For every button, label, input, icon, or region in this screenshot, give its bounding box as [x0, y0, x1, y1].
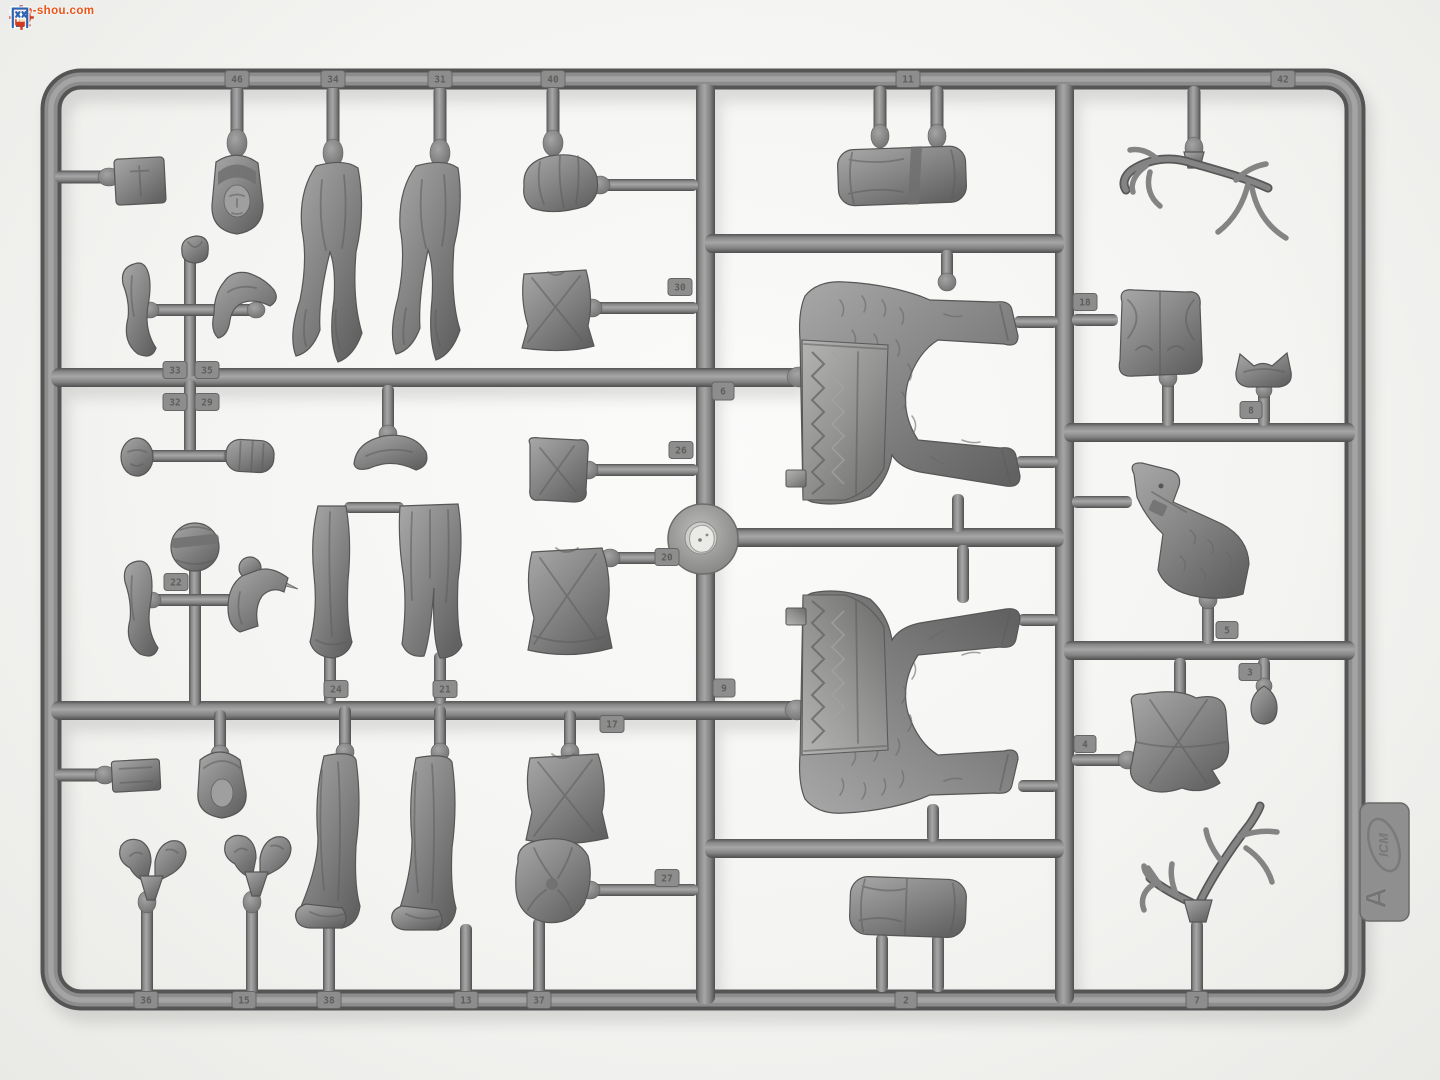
- cn-wang-glyph: [9, 5, 31, 29]
- svg-text:36: 36: [140, 996, 152, 1007]
- part-number-tab: 31: [428, 71, 452, 88]
- part-number-tab: 13: [454, 992, 478, 1009]
- part-number-tab: 4: [1074, 736, 1096, 753]
- part-arm-left-2: [124, 561, 158, 656]
- svg-text:2: 2: [903, 996, 909, 1007]
- part-head-fur-hood: [212, 155, 263, 234]
- svg-text:7: 7: [1194, 996, 1200, 1007]
- svg-text:21: 21: [439, 685, 451, 696]
- part-number-tab: 34: [321, 71, 345, 88]
- svg-text:4: 4: [1082, 740, 1088, 751]
- part-number-tab: 20: [655, 549, 679, 566]
- part-number-tab: 30: [668, 279, 692, 296]
- part-bedroll-bottom: [849, 876, 967, 938]
- sprue-letter: A: [1360, 887, 1393, 909]
- part-deer-ears: [1236, 353, 1291, 387]
- svg-text:31: 31: [434, 75, 446, 86]
- part-number-tab: 46: [225, 71, 249, 88]
- part-number-tab: 32: [163, 394, 187, 411]
- part-number-tab: 9: [713, 679, 735, 697]
- part-legs-bent-1: [293, 162, 362, 362]
- part-leg-long-single: [310, 506, 352, 658]
- part-roll-small: [225, 439, 275, 473]
- icm-sprue-tab: ICM A: [1360, 803, 1409, 921]
- part-antlers-1: [1124, 149, 1286, 238]
- part-number-tab: 17: [600, 716, 624, 733]
- svg-text:3: 3: [1247, 668, 1253, 679]
- part-flat-strip: [111, 759, 161, 792]
- part-number-tab: 24: [324, 681, 348, 698]
- part-mittens-pair-2: [225, 835, 291, 896]
- part-number-tab: 26: [669, 442, 693, 459]
- part-number-tab: 42: [1271, 71, 1295, 88]
- part-fur-cap-2: [516, 839, 591, 923]
- part-number-tab: 2: [895, 992, 917, 1009]
- svg-text:32: 32: [169, 398, 180, 409]
- part-number-tab: 37: [527, 992, 551, 1009]
- photo-canvas: ICM A 46 34 31 40 11 42 33 35 32 29 30 2…: [0, 0, 1440, 1080]
- svg-text:13: 13: [460, 996, 472, 1007]
- part-torso-2: [528, 548, 612, 655]
- part-leg-boot-2: [392, 756, 456, 930]
- svg-text:35: 35: [201, 366, 213, 377]
- svg-text:26: 26: [675, 446, 687, 457]
- svg-text:6: 6: [720, 387, 726, 398]
- part-leg-boot-1: [296, 754, 360, 928]
- svg-text:38: 38: [323, 996, 335, 1007]
- part-torso-3: [526, 754, 608, 844]
- part-tied-bundle: [1131, 692, 1229, 792]
- part-number-tab: 29: [195, 394, 219, 411]
- part-torso-1: [522, 270, 594, 351]
- part-number-tab: 38: [317, 992, 341, 1009]
- watermark: gao-shou.com: [9, 5, 129, 17]
- part-hat-small: [182, 236, 208, 263]
- svg-text:33: 33: [169, 366, 181, 377]
- svg-text:20: 20: [661, 553, 673, 564]
- part-number-tab: 3: [1239, 664, 1261, 681]
- svg-text:30: 30: [674, 283, 686, 294]
- part-mittens-pair: [120, 839, 186, 900]
- part-backpack-bundle: [1119, 290, 1202, 376]
- part-fur-cap-1: [524, 155, 598, 212]
- part-number-tab: 22: [164, 574, 188, 591]
- svg-text:27: 27: [661, 874, 672, 885]
- part-bedroll-top: [837, 145, 967, 207]
- part-number-tab: 15: [232, 992, 256, 1009]
- part-number-tab: 7: [1186, 992, 1208, 1009]
- svg-text:29: 29: [201, 398, 213, 409]
- part-head-pointed-hood: [198, 752, 246, 818]
- part-reindeer-half-2: [786, 591, 1020, 813]
- svg-text:15: 15: [238, 996, 250, 1007]
- svg-text:22: 22: [170, 578, 181, 589]
- part-number-tab: 5: [1216, 622, 1238, 639]
- part-collar: [354, 435, 427, 470]
- sprue-photo: ICM A 46 34 31 40 11 42 33 35 32 29 30 2…: [0, 0, 1440, 1080]
- part-teardrop: [1251, 686, 1277, 724]
- svg-text:46: 46: [231, 75, 243, 86]
- part-number-tab: 27: [655, 870, 679, 887]
- part-number-tab: 21: [433, 681, 457, 698]
- svg-text:17: 17: [606, 720, 617, 731]
- part-arm-with-knife: [228, 557, 298, 632]
- svg-text:11: 11: [902, 75, 914, 86]
- svg-text:40: 40: [547, 75, 559, 86]
- svg-text:24: 24: [330, 685, 342, 696]
- svg-text:5: 5: [1224, 626, 1230, 637]
- part-number-tab: 18: [1073, 294, 1097, 311]
- svg-text:8: 8: [1248, 406, 1254, 417]
- part-number-tab: 35: [195, 362, 219, 379]
- part-number-tab: 6: [712, 382, 734, 400]
- svg-text:9: 9: [721, 684, 727, 695]
- part-legs-bent-2: [392, 162, 460, 360]
- part-head-wrapped: [171, 523, 220, 571]
- part-number-tab: 8: [1240, 402, 1262, 419]
- brand-text: ICM: [1376, 832, 1391, 857]
- svg-text:42: 42: [1277, 75, 1288, 86]
- part-reindeer-half-1: [786, 282, 1020, 504]
- part-deer-head-neck: [1132, 463, 1249, 598]
- part-number-tab: 40: [541, 71, 565, 88]
- svg-text:37: 37: [533, 996, 544, 1007]
- part-number-tab: 33: [163, 362, 187, 379]
- part-legs-long-pair: [399, 504, 462, 658]
- part-antlers-2: [1142, 806, 1277, 922]
- svg-text:34: 34: [327, 75, 339, 86]
- part-flat-plate: [114, 157, 166, 206]
- svg-text:18: 18: [1079, 298, 1091, 309]
- part-number-tab: 11: [896, 71, 920, 88]
- part-bag-small: [529, 438, 588, 502]
- part-head-small: [121, 438, 153, 476]
- part-number-tab: 36: [134, 992, 158, 1009]
